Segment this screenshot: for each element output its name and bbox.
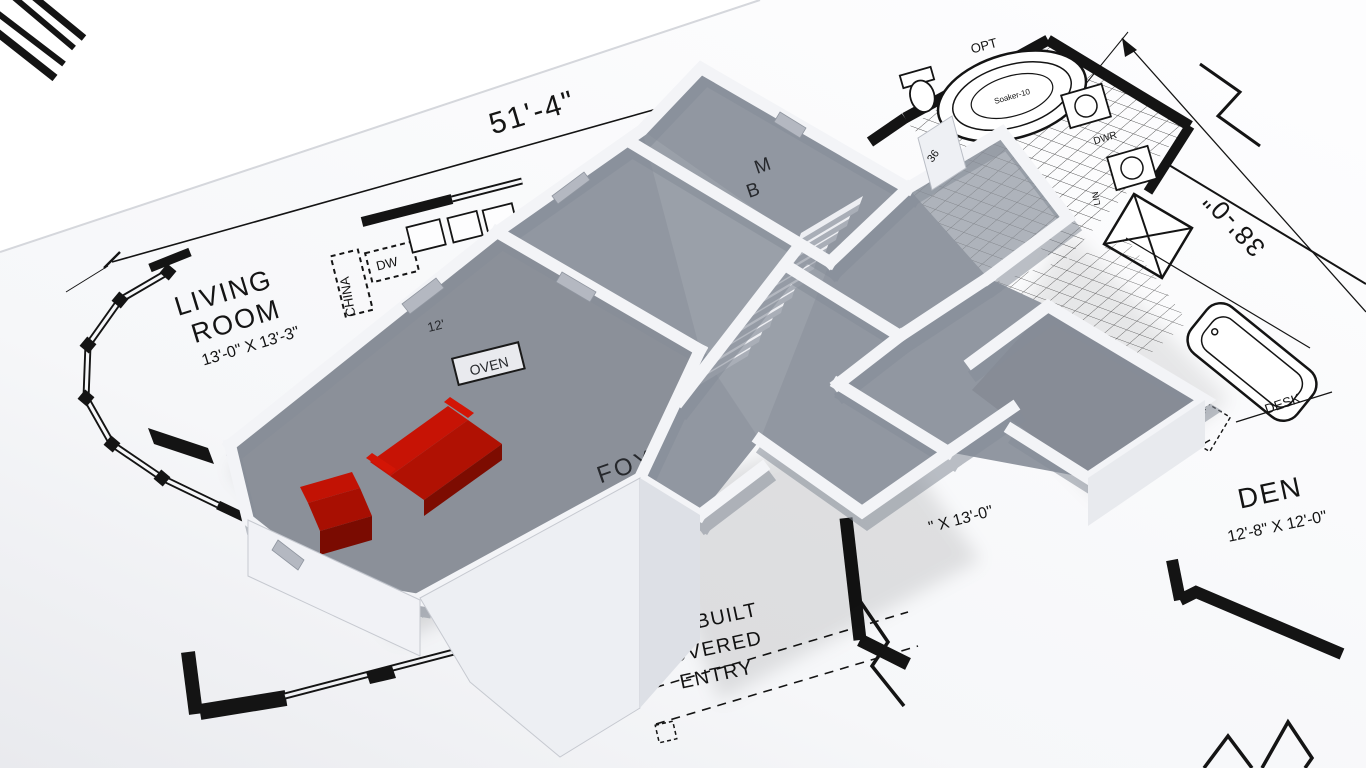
floorplan-scene: 51'-4" 38'-0" LI <box>0 0 1366 768</box>
render-canvas: 51'-4" 38'-0" LI <box>0 0 1366 768</box>
